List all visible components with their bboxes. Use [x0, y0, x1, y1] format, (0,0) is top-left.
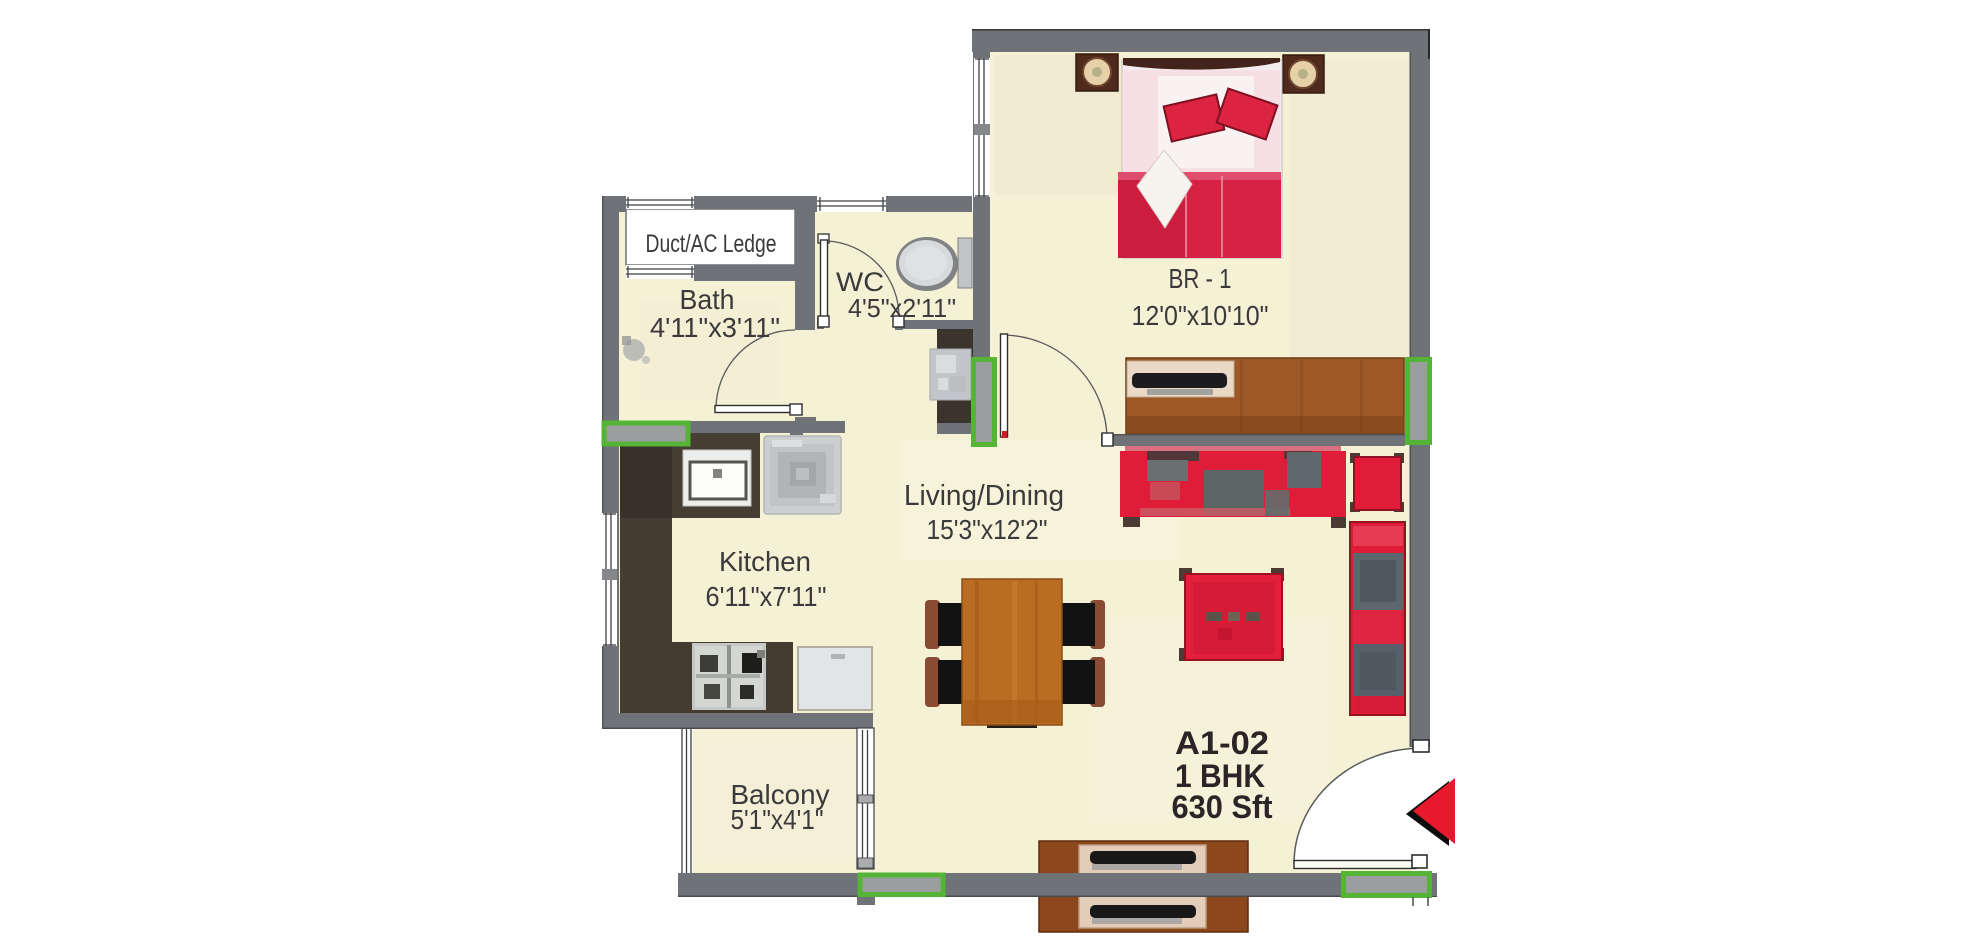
svg-text:Kitchen: Kitchen — [719, 546, 811, 577]
svg-text:4'5"x2'11": 4'5"x2'11" — [848, 293, 956, 323]
svg-text:630 Sft: 630 Sft — [1172, 789, 1273, 825]
svg-text:5'1"x4'1": 5'1"x4'1" — [731, 804, 824, 835]
svg-text:6'11"x7'11": 6'11"x7'11" — [706, 581, 827, 612]
svg-text:A1-02: A1-02 — [1175, 725, 1269, 761]
svg-text:Living/Dining: Living/Dining — [904, 480, 1064, 512]
svg-text:4'11"x3'11": 4'11"x3'11" — [650, 312, 780, 343]
svg-text:Bath: Bath — [680, 284, 735, 315]
svg-text:15'3"x12'2": 15'3"x12'2" — [927, 514, 1048, 545]
svg-text:Duct/AC Ledge: Duct/AC Ledge — [646, 230, 777, 258]
svg-text:12'0"x10'10": 12'0"x10'10" — [1132, 300, 1269, 331]
svg-text:BR - 1: BR - 1 — [1169, 263, 1232, 294]
